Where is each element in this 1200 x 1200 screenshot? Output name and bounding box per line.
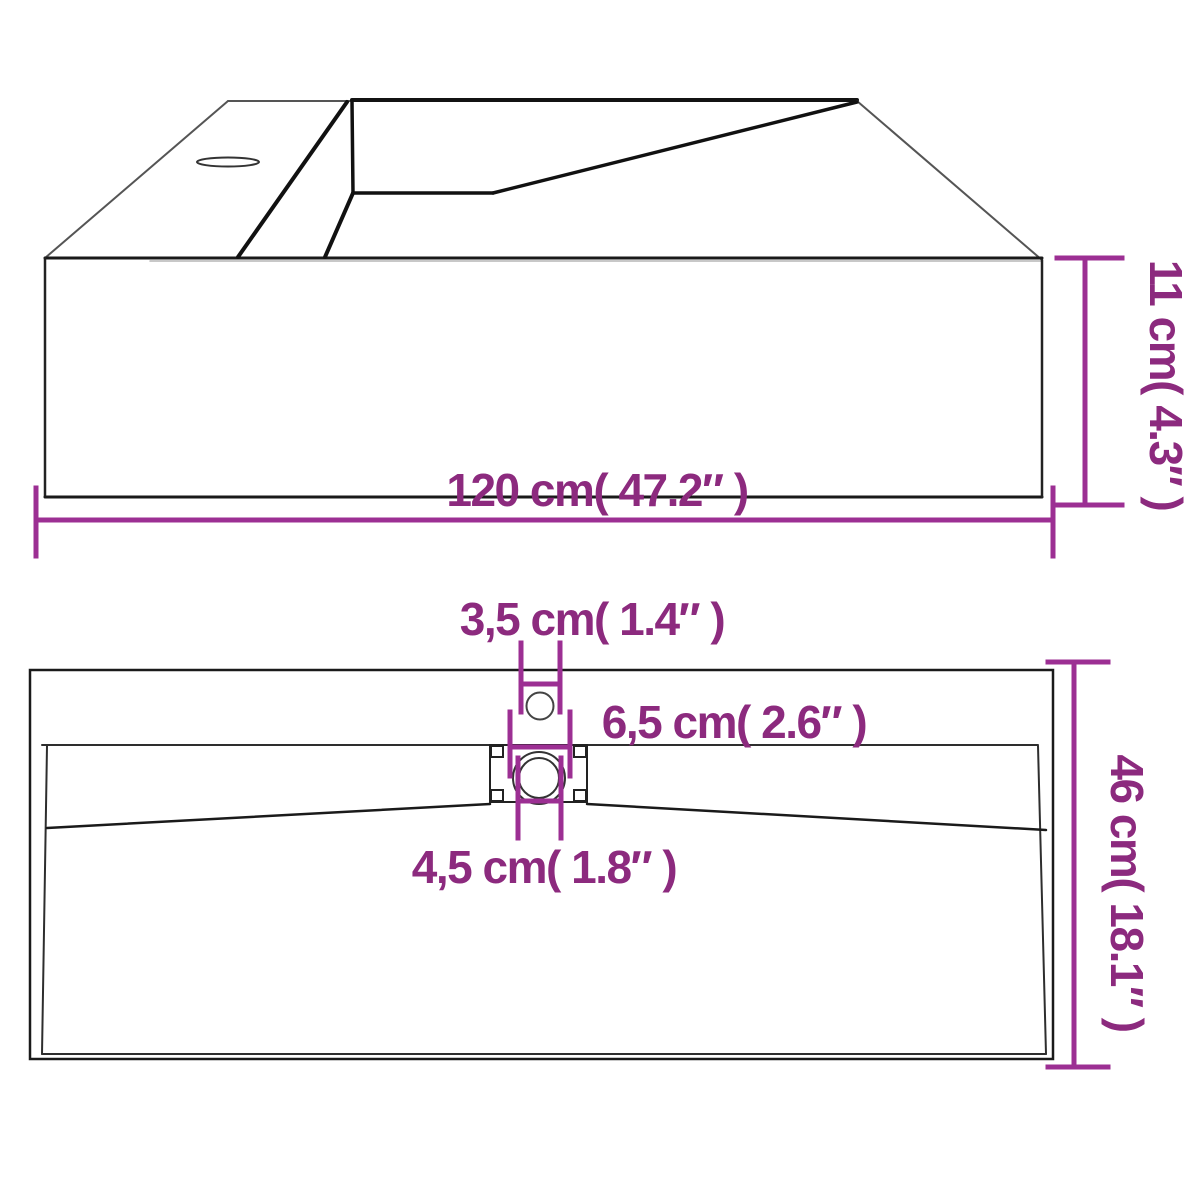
faucet-hole-top-view <box>527 693 554 720</box>
drain-flange-tab-tr <box>574 746 586 757</box>
floor-crease-right <box>587 804 1046 830</box>
sink-dimension-diagram: 120 cm( 47.2″ ) 11 cm( 4.3″ ) 3,5 cm( 1.… <box>0 0 1200 1200</box>
drain-flange-tab-tl <box>491 746 503 757</box>
height-dimension <box>1057 258 1122 505</box>
faucet-hole-perspective <box>197 158 259 167</box>
deck-left-edge <box>45 101 228 258</box>
height-dimension-label: 11 cm( 4.3″ ) <box>1143 260 1189 511</box>
floor-crease-left <box>47 804 490 828</box>
drain-flange-dimension-label: 6,5 cm( 2.6″ ) <box>602 699 866 745</box>
drain-outer-circle <box>513 752 565 804</box>
basin-back-corner-edge <box>352 101 353 193</box>
inner-right-edge <box>1038 746 1046 1054</box>
faucet-hole-dimension-label: 3,5 cm( 1.4″ ) <box>460 596 724 642</box>
inner-left-edge <box>42 746 47 1054</box>
width-dimension-label: 120 cm( 47.2″ ) <box>446 467 747 513</box>
deck-right-edge <box>857 101 1042 260</box>
drain-flange-tab-bl <box>491 790 503 801</box>
drain-flange-tab-br <box>574 790 586 801</box>
basin-floor-slope-edge <box>493 102 857 193</box>
sink-perspective-drawing <box>45 100 1042 497</box>
basin-floor-left-crease <box>325 193 353 257</box>
basin-left-opening-edge <box>238 102 347 257</box>
depth-dimension-label: 46 cm( 18.1″ ) <box>1104 754 1150 1031</box>
drain-hole-dimension-label: 4,5 cm( 1.8″ ) <box>412 844 676 890</box>
depth-dimension <box>1048 662 1108 1067</box>
drain-inner-circle <box>519 758 559 798</box>
